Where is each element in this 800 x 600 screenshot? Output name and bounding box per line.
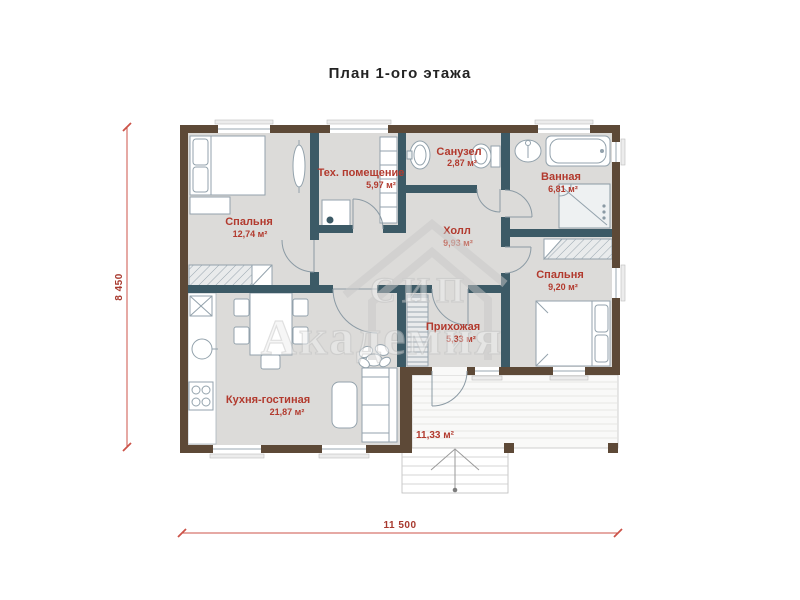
bathtub-symbol (546, 136, 610, 166)
sink-symbol (515, 140, 541, 162)
svg-text:9,20 м²: 9,20 м² (548, 282, 578, 292)
svg-text:Ванная: Ванная (541, 171, 581, 183)
window-bedroom2-right (612, 265, 625, 301)
svg-text:Тех. помещение: Тех. помещение (318, 167, 405, 179)
window-tech-top (327, 120, 391, 133)
page-title: План 1-ого этажа (329, 65, 472, 82)
terrace-post (504, 443, 514, 453)
svg-text:Санузел: Санузел (436, 146, 481, 158)
svg-text:8 450: 8 450 (114, 273, 125, 301)
window-bath-right (612, 139, 625, 165)
watermark-line2: Академия (261, 309, 504, 365)
svg-text:5,97 м²: 5,97 м² (366, 180, 396, 190)
svg-text:6,81 м²: 6,81 м² (548, 184, 578, 194)
room-label-terrace: 11,33 м² (416, 430, 455, 441)
dimension-height: 8 450 (114, 123, 131, 451)
kitchen-counter-symbol (188, 293, 218, 444)
wardrobe-symbol (189, 265, 272, 286)
entrance-stairs (402, 448, 508, 493)
room-label-bedroom1: Спальня 12,74 м² (225, 216, 273, 239)
floor-plan-canvas: План 1-ого этажа (0, 0, 800, 600)
window-bedroom1-top (215, 120, 273, 133)
svg-text:12,74 м²: 12,74 м² (233, 229, 268, 239)
svg-text:11 500: 11 500 (383, 520, 416, 531)
window-kitchen-bottom-1 (210, 445, 264, 458)
room-bedroom2 (536, 239, 612, 366)
wardrobe-symbol (544, 239, 612, 259)
svg-text:21,87 м²: 21,87 м² (270, 407, 305, 417)
svg-text:Спальня: Спальня (536, 269, 584, 281)
svg-text:2,87 м²: 2,87 м² (447, 158, 477, 168)
sofa-symbol (362, 368, 397, 442)
svg-text:Спальня: Спальня (225, 216, 273, 228)
svg-text:11,33 м²: 11,33 м² (416, 430, 455, 441)
terrace-post (608, 443, 618, 453)
svg-text:Кухня-гостиная: Кухня-гостиная (226, 394, 310, 406)
dimension-width: 11 500 (178, 520, 622, 537)
window-entry-bottom (472, 367, 502, 380)
boiler-symbol (322, 200, 350, 227)
watermark-line1: СИП (370, 270, 470, 310)
window-bath-top (535, 120, 593, 133)
bed-double-symbol (536, 301, 610, 366)
window-bedroom2-bottom (550, 367, 588, 380)
window-kitchen-bottom-2 (319, 445, 369, 458)
coffee-table-symbol (332, 382, 357, 428)
floor-plan-page: План 1-ого этажа (0, 0, 800, 600)
